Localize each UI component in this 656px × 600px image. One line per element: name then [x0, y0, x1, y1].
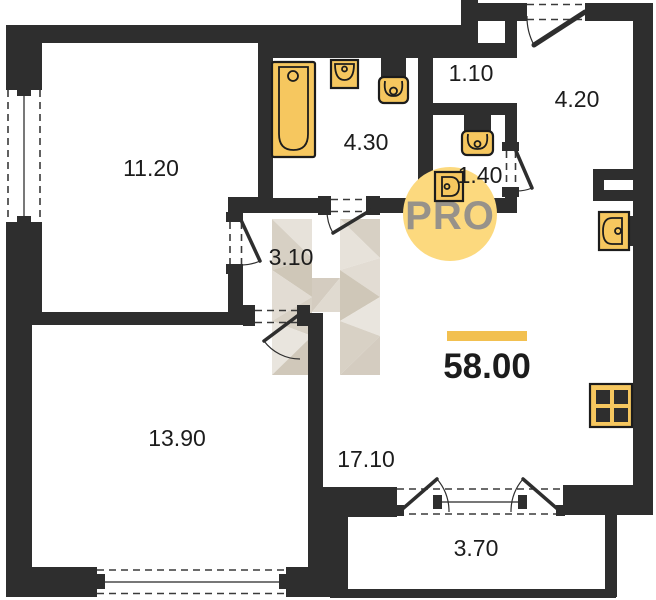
- stove: [590, 384, 632, 427]
- room-label-11-20: 11.20: [123, 155, 179, 181]
- room-label-3-10: 3.10: [269, 244, 314, 270]
- door-wc: [507, 151, 533, 191]
- room-label-4-20: 4.20: [555, 86, 600, 112]
- wc-toilet: [462, 115, 493, 155]
- letter-n-watermark: [272, 219, 380, 375]
- room-label-1-10: 1.10: [449, 60, 494, 86]
- entrance-door: [527, 5, 585, 46]
- balcony-door-leaf-left: [399, 479, 437, 512]
- bathtub: [272, 62, 315, 157]
- entrance-door-leaf: [534, 12, 585, 45]
- room-label-3-70: 3.70: [454, 535, 499, 561]
- window-left: [8, 86, 40, 226]
- vent-duct: [593, 169, 637, 201]
- room-label-17-10: 17.10: [337, 446, 395, 472]
- balcony-door-window: [395, 479, 565, 516]
- floor-plan-page: PRO: [0, 0, 656, 600]
- room-label-13-90: 13.90: [148, 425, 206, 451]
- room-label-4-30: 4.30: [344, 129, 389, 155]
- bathroom-sink: [331, 60, 358, 88]
- bathroom-toilet: [379, 58, 408, 103]
- total-area: 58.00: [443, 331, 531, 386]
- balcony-door-leaf-right: [523, 479, 561, 512]
- window-bottom: [95, 570, 289, 594]
- total-area-underline: [447, 331, 527, 341]
- floor-plan-svg: PRO: [0, 0, 656, 600]
- kitchen-sink: [599, 212, 633, 250]
- total-area-value: 58.00: [443, 347, 531, 386]
- door-room-11-20: [230, 220, 260, 265]
- room-label-1-40: 1.40: [458, 162, 503, 188]
